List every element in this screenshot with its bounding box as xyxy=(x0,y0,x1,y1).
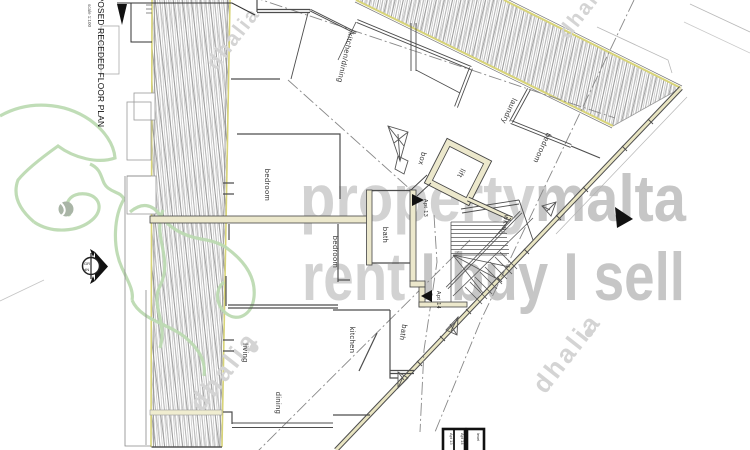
svg-text:bath: bath xyxy=(398,324,410,342)
svg-text:scale 1:100: scale 1:100 xyxy=(87,4,92,28)
svg-text:box: box xyxy=(416,151,428,166)
svg-text:level: level xyxy=(476,433,481,441)
svg-text:dining: dining xyxy=(274,392,283,414)
svg-text:GR: GR xyxy=(84,261,90,266)
svg-text:Apt 13: Apt 13 xyxy=(422,199,428,217)
svg-text:dhalia: dhalia xyxy=(526,307,607,399)
svg-text:bedroom: bedroom xyxy=(331,236,340,268)
svg-text:bedroom: bedroom xyxy=(263,169,272,201)
svg-text:dN: dN xyxy=(84,267,89,272)
svg-text:living: living xyxy=(241,343,250,363)
svg-text:Apt 14: Apt 14 xyxy=(435,291,441,309)
svg-text:propertymalta: propertymalta xyxy=(300,161,687,235)
svg-text:Apt 14: Apt 14 xyxy=(460,433,465,445)
svg-text:kitchen/dining: kitchen/dining xyxy=(335,31,355,83)
svg-text:bath: bath xyxy=(381,227,390,243)
svg-text:kitchen: kitchen xyxy=(348,327,357,354)
svg-text:PROPOSED RECEDED FLOOR PLAN: PROPOSED RECEDED FLOOR PLAN xyxy=(96,0,106,127)
svg-text:dhalia: dhalia xyxy=(554,0,617,43)
svg-text:Apt 13: Apt 13 xyxy=(449,433,454,445)
svg-text:laundry: laundry xyxy=(499,97,519,126)
